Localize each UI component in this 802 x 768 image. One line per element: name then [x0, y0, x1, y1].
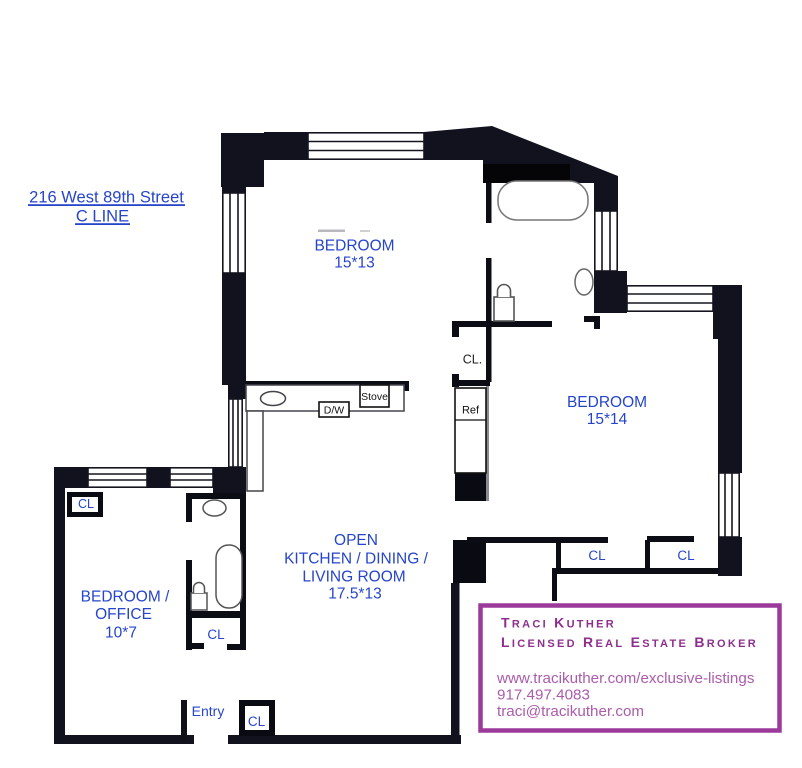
svg-text:LIVING ROOM: LIVING ROOM	[302, 569, 405, 586]
svg-text:D/W: D/W	[324, 405, 345, 417]
svg-text:www.tracikuther.com/exclusive-: www.tracikuther.com/exclusive-listings	[496, 670, 755, 687]
svg-text:BEDROOM /: BEDROOM /	[81, 589, 170, 606]
svg-text:17.5*13: 17.5*13	[328, 586, 381, 603]
svg-text:15*14: 15*14	[587, 411, 628, 428]
svg-text:CL.: CL.	[463, 353, 482, 367]
svg-text:C LINE: C LINE	[76, 208, 129, 226]
svg-text:OPEN: OPEN	[334, 532, 378, 549]
svg-text:CL: CL	[78, 497, 94, 511]
svg-text:OFFICE: OFFICE	[95, 606, 152, 623]
svg-text:Stove: Stove	[361, 391, 388, 403]
svg-text:15*13: 15*13	[334, 255, 375, 272]
svg-text:KITCHEN / DINING /: KITCHEN / DINING /	[284, 551, 429, 568]
svg-text:BEDROOM: BEDROOM	[567, 394, 647, 411]
svg-text:CL: CL	[207, 627, 225, 642]
svg-text:BEDROOM: BEDROOM	[314, 238, 394, 255]
svg-text:CL: CL	[248, 714, 266, 729]
svg-text:Ref: Ref	[462, 405, 480, 417]
svg-text:traci@tracikuther.com: traci@tracikuther.com	[497, 703, 644, 720]
svg-text:10*7: 10*7	[105, 625, 137, 642]
svg-text:216 West 89th Street: 216 West 89th Street	[29, 189, 184, 207]
svg-text:CL: CL	[677, 548, 695, 563]
svg-text:917.497.4083: 917.497.4083	[497, 687, 590, 704]
svg-text:CL: CL	[588, 548, 606, 563]
svg-text:Entry: Entry	[192, 703, 225, 719]
